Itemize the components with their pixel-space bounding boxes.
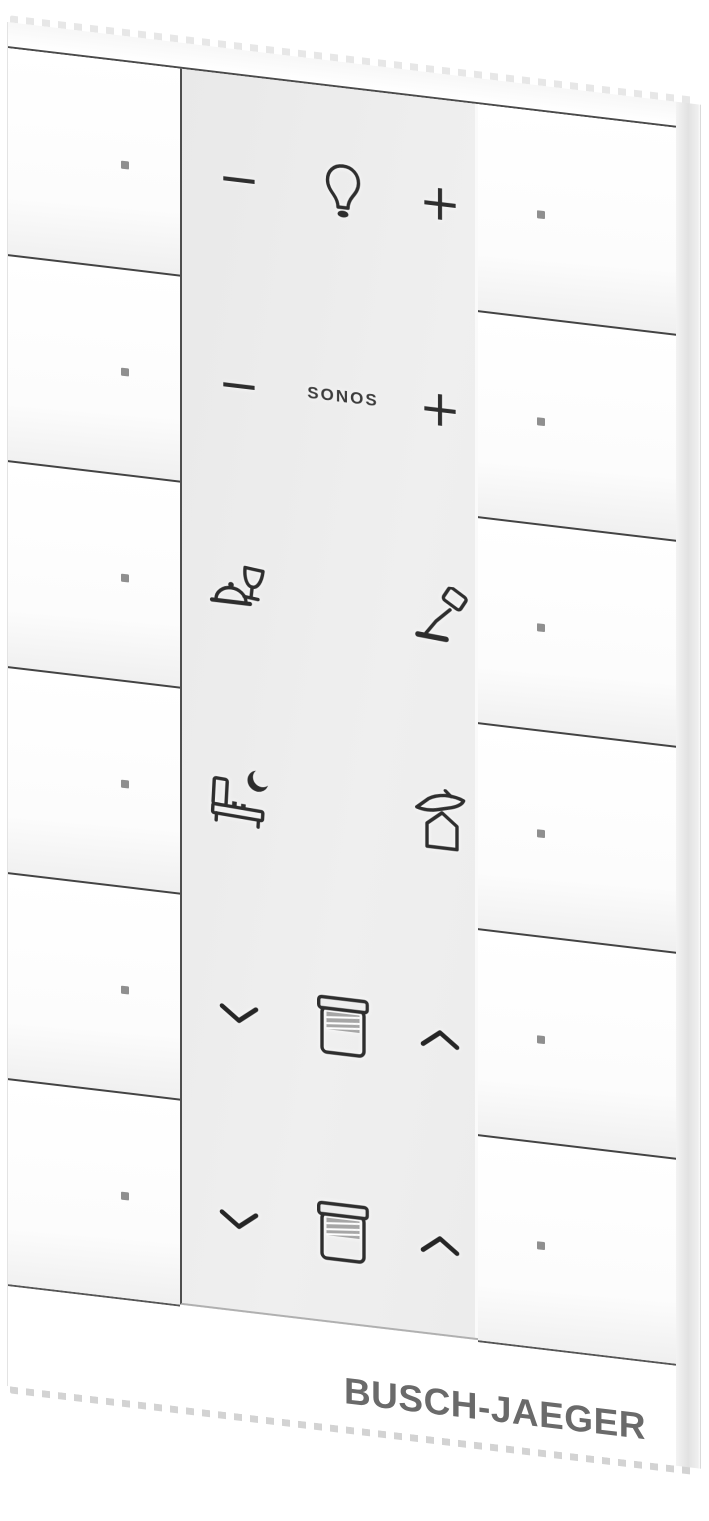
away-scene-icon bbox=[412, 785, 468, 856]
volume-minus-button[interactable]: − bbox=[218, 357, 260, 412]
wall-switch-device: − + − SONOS + bbox=[7, 22, 701, 1469]
center-control-panel: − + − SONOS + bbox=[180, 69, 478, 1341]
right-rocker-column bbox=[478, 104, 676, 1366]
blind-upper-up-button[interactable] bbox=[420, 1026, 460, 1051]
device-face: − + − SONOS + bbox=[7, 22, 676, 1466]
sleep-scene-icon bbox=[207, 763, 271, 831]
status-dot bbox=[121, 161, 129, 170]
row-scenes-lower bbox=[182, 687, 478, 928]
right-rocker-button-1[interactable] bbox=[478, 104, 676, 334]
left-rocker-column bbox=[8, 48, 180, 1307]
blind-lower-down-button[interactable] bbox=[219, 1208, 259, 1233]
status-dot bbox=[537, 1035, 545, 1044]
status-dot bbox=[121, 574, 129, 583]
dinner-scene-icon bbox=[208, 558, 270, 623]
roller-blind-icon bbox=[317, 1200, 369, 1266]
away-scene-button[interactable] bbox=[412, 785, 468, 856]
blind-upper-down-button[interactable] bbox=[219, 1002, 259, 1027]
row-blind-upper bbox=[182, 893, 478, 1134]
status-dot bbox=[537, 1241, 545, 1250]
left-rocker-button-4[interactable] bbox=[8, 666, 180, 893]
status-dot bbox=[537, 210, 545, 219]
device-side-face bbox=[673, 101, 701, 1468]
sleep-scene-button[interactable] bbox=[207, 763, 271, 831]
status-dot bbox=[121, 986, 129, 995]
left-rocker-button-3[interactable] bbox=[8, 460, 180, 687]
right-rocker-button-4[interactable] bbox=[478, 722, 676, 952]
chevron-down-icon bbox=[219, 1208, 259, 1233]
dinner-scene-button[interactable] bbox=[208, 558, 270, 623]
status-dot bbox=[121, 780, 129, 789]
dimmer-plus-button[interactable]: + bbox=[419, 175, 461, 230]
row-scenes-upper bbox=[182, 481, 478, 722]
dimmer-minus-button[interactable]: − bbox=[218, 151, 260, 206]
status-dot bbox=[537, 417, 545, 426]
status-dot bbox=[121, 368, 129, 377]
product-photo-canvas: − + − SONOS + bbox=[0, 0, 709, 1521]
reading-lamp-button[interactable] bbox=[411, 582, 469, 647]
chevron-down-icon bbox=[219, 1002, 259, 1027]
roller-blind-icon bbox=[317, 994, 369, 1060]
right-rocker-button-6[interactable] bbox=[478, 1134, 676, 1364]
status-dot bbox=[121, 1192, 129, 1201]
status-dot bbox=[537, 623, 545, 632]
left-rocker-button-2[interactable] bbox=[8, 254, 180, 481]
left-rocker-button-5[interactable] bbox=[8, 872, 180, 1099]
left-rocker-button-1[interactable] bbox=[8, 48, 180, 275]
row-blind-lower bbox=[182, 1099, 478, 1340]
reading-lamp-icon bbox=[411, 582, 469, 647]
status-dot bbox=[537, 829, 545, 838]
volume-plus-button[interactable]: + bbox=[419, 381, 461, 436]
sonos-label: SONOS bbox=[307, 383, 378, 412]
light-bulb-icon bbox=[323, 161, 363, 222]
blind-lower-up-button[interactable] bbox=[420, 1232, 460, 1257]
chevron-up-icon bbox=[420, 1026, 460, 1051]
row-sonos-volume: − SONOS + bbox=[182, 275, 478, 516]
row-light-dimmer: − + bbox=[182, 69, 478, 310]
right-rocker-button-3[interactable] bbox=[478, 516, 676, 746]
right-rocker-button-5[interactable] bbox=[478, 928, 676, 1158]
chevron-up-icon bbox=[420, 1232, 460, 1257]
right-rocker-button-2[interactable] bbox=[478, 310, 676, 540]
left-rocker-button-6[interactable] bbox=[8, 1078, 180, 1305]
